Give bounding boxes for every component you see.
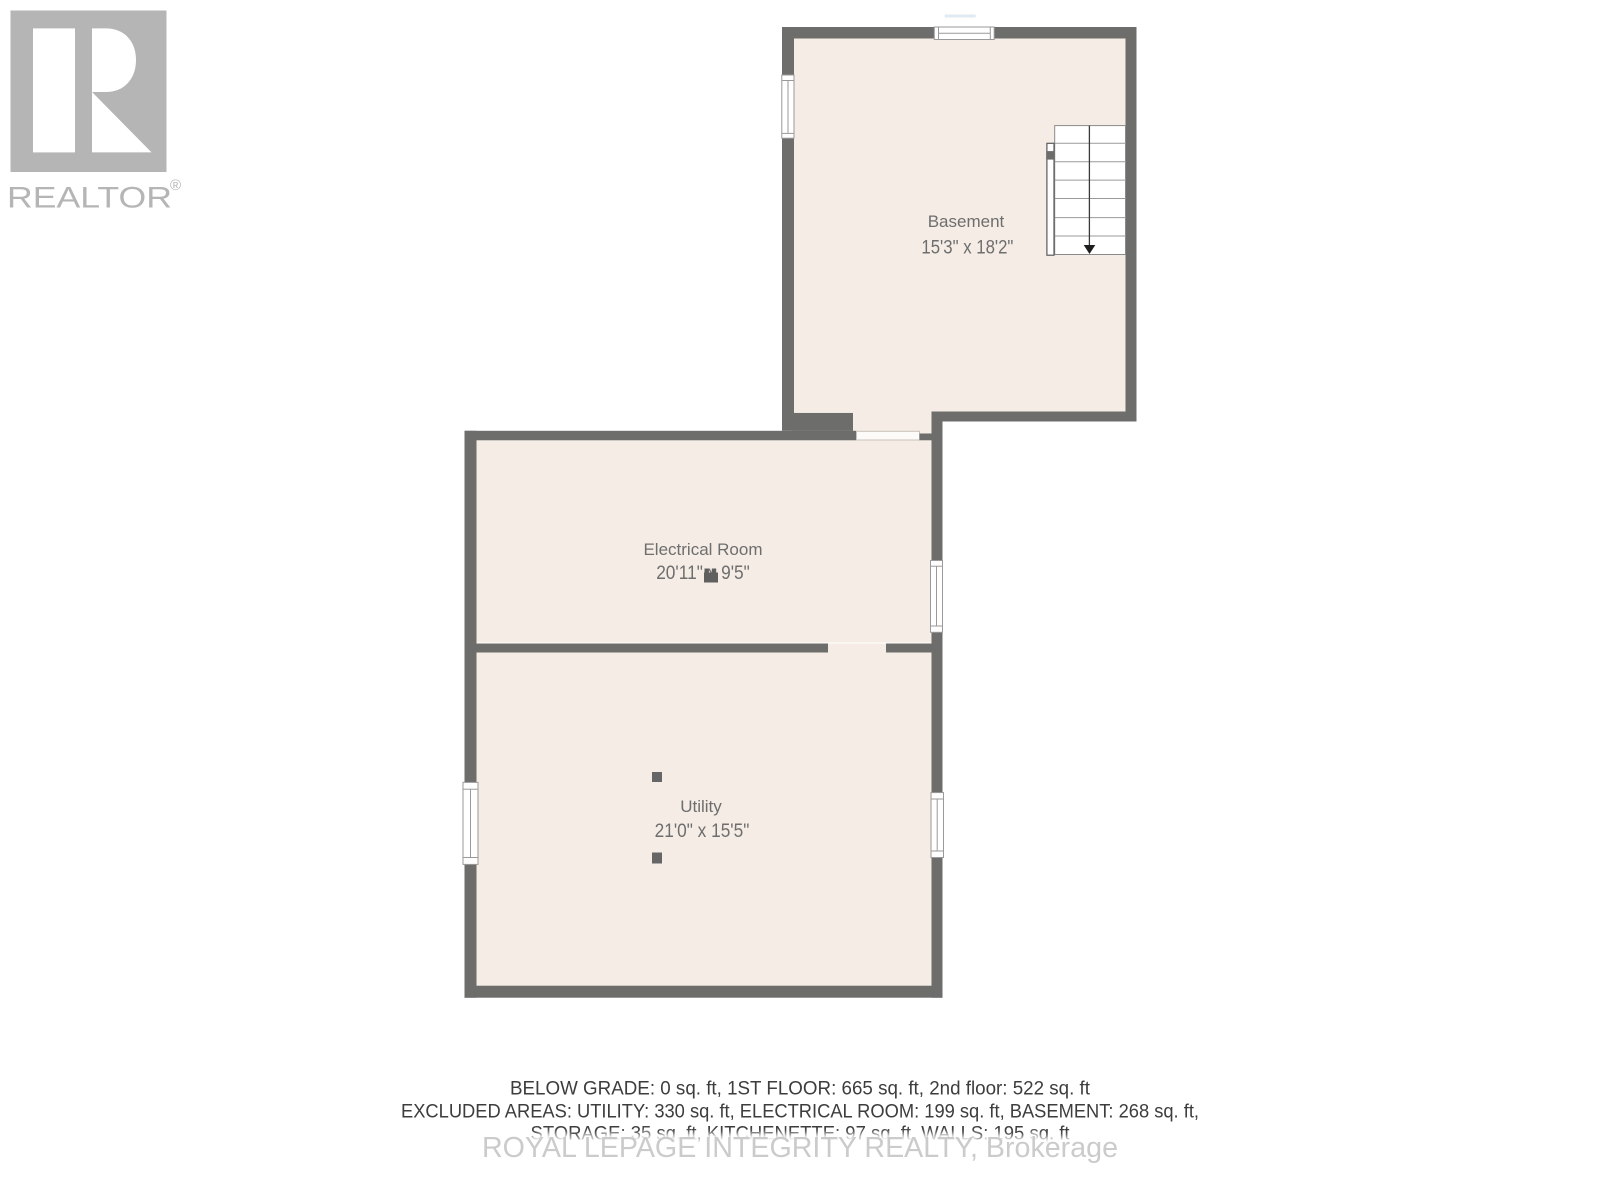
svg-text:Utility: Utility	[680, 797, 722, 816]
svg-text:Electrical Room: Electrical Room	[643, 540, 762, 559]
svg-text:ROYAL LEPAGE INTEGRITY REALTY,: ROYAL LEPAGE INTEGRITY REALTY, Brokerage	[482, 1132, 1118, 1164]
svg-text:20'11" x 9'5": 20'11" x 9'5"	[656, 563, 750, 584]
svg-text:EXCLUDED AREAS: UTILITY: 330 s: EXCLUDED AREAS: UTILITY: 330 sq. ft, ELE…	[401, 1101, 1199, 1123]
svg-text:Basement: Basement	[928, 212, 1005, 231]
svg-text:15'3" x 18'2": 15'3" x 18'2"	[921, 237, 1013, 258]
svg-text:BELOW GRADE: 0 sq. ft, 1ST FLO: BELOW GRADE: 0 sq. ft, 1ST FLOOR: 665 sq…	[510, 1078, 1091, 1100]
svg-text:21'0" x 15'5": 21'0" x 15'5"	[655, 821, 750, 842]
svg-text:REALTOR: REALTOR	[7, 182, 172, 215]
svg-text:®: ®	[170, 177, 181, 194]
